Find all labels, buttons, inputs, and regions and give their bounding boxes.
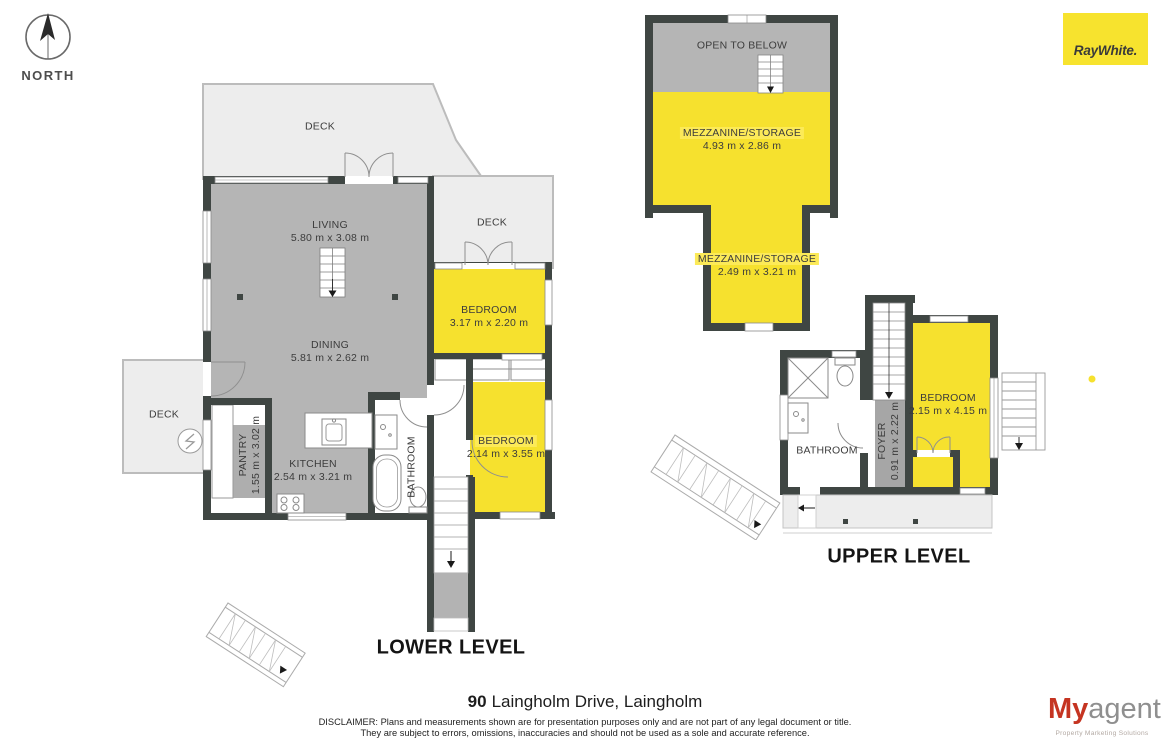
living-label: LIVING 5.80 m x 3.08 m: [291, 219, 369, 245]
lower-bathroom-label: BATHROOM: [406, 436, 419, 498]
upper-right-stairs: [1002, 373, 1045, 450]
upper-external-stairs: [651, 435, 780, 540]
foyer-label: FOYER 0.91 m x 2.22 m: [876, 402, 902, 480]
bedroom1-label: BEDROOM 3.17 m x 2.20 m: [450, 304, 528, 330]
stove-icon: [277, 494, 304, 513]
north-compass: NORTH: [16, 6, 80, 83]
upper-stairs: [873, 303, 905, 400]
disclaimer-line-2: They are subject to errors, omissions, i…: [0, 728, 1170, 738]
post: [237, 294, 243, 300]
bedroom2-label: BEDROOM 2.14 m x 3.55 m: [467, 435, 545, 461]
myagent-logo-my: My: [1048, 693, 1088, 725]
post: [392, 294, 398, 300]
yellow-dot: [1089, 376, 1096, 383]
disclaimer-text: DISCLAIMER: Plans and measurements shown…: [0, 717, 1170, 738]
compass-icon: [20, 6, 76, 62]
lower-level-title: LOWER LEVEL: [377, 637, 526, 660]
bathtub-icon: [373, 455, 401, 511]
disclaimer-line-1: DISCLAIMER: Plans and measurements shown…: [0, 717, 1170, 728]
pantry-label: PANTRY 1.55 m x 3.02 m: [237, 416, 263, 494]
lower-level-plan: [110, 75, 570, 690]
myagent-logo-agent: agent: [1088, 693, 1161, 725]
property-address: 90Laingholm Drive, Laingholm: [0, 692, 1170, 712]
upper-bathroom-label: BATHROOM: [796, 445, 858, 458]
mezz-stairs: [758, 55, 783, 93]
lower-stairwell: [434, 477, 468, 631]
upper-entry-deck: [783, 495, 992, 533]
floorplan-page: NORTH RayWhite.: [0, 0, 1170, 738]
address-street-name: Laingholm Drive, Laingholm: [492, 692, 703, 711]
deck-right-label: DECK: [477, 217, 507, 230]
myagent-logo: Myagent Property Marketing Solutions: [1048, 694, 1156, 737]
upper-level-title: UPPER LEVEL: [827, 546, 970, 569]
toilet-icon: [837, 366, 853, 386]
open-to-below-label: OPEN TO BELOW: [697, 40, 787, 53]
address-street-number: 90: [468, 692, 487, 711]
lower-internal-stairs: [320, 248, 345, 297]
myagent-tagline: Property Marketing Solutions: [1048, 730, 1156, 737]
sink-icon: [788, 403, 808, 433]
wardrobe: [435, 359, 469, 380]
lower-external-stairs: [206, 603, 305, 687]
deck-left-label: DECK: [149, 409, 179, 422]
deck-top-label: DECK: [305, 121, 335, 134]
upper-bedroom-label: BEDROOM 2.15 m x 4.15 m: [909, 392, 987, 418]
kitchen-label: KITCHEN 2.54 m x 3.21 m: [274, 458, 352, 484]
open-to-below-floor: [653, 23, 830, 92]
mezzanine1-label: MEZZANINE/STORAGE 4.93 m x 2.86 m: [680, 127, 804, 153]
lower-deck-top: [203, 84, 481, 179]
compass-label: NORTH: [16, 68, 80, 83]
kitchen-island: [305, 413, 372, 448]
dining-label: DINING 5.81 m x 2.62 m: [291, 339, 369, 365]
mezzanine2-label: MEZZANINE/STORAGE 2.49 m x 3.21 m: [695, 253, 819, 279]
